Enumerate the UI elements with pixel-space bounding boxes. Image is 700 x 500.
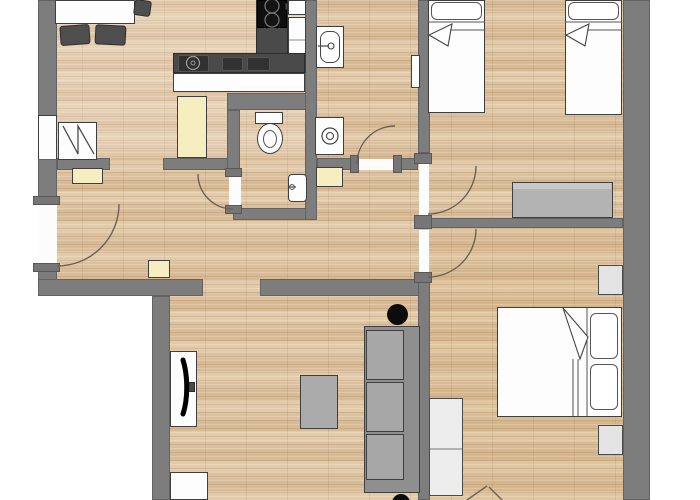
entrance-jamb-bottom: [33, 263, 60, 272]
sideboard-top: [513, 183, 611, 189]
bath-jamb-right: [393, 155, 402, 173]
radiator: [58, 122, 97, 160]
basin-tray: [222, 57, 243, 71]
coffee-table: [300, 375, 338, 429]
toilet-bowl-inner: [263, 130, 277, 148]
low-cabinet: [170, 472, 208, 500]
kitchen-lower-cabinet: [173, 73, 305, 92]
counter-sink: [178, 55, 209, 72]
bedroom-jamb-1: [414, 153, 432, 164]
hand-basin: [288, 174, 307, 202]
bedroom-jamb-3: [414, 272, 432, 283]
entrance-jamb-top: [33, 196, 60, 205]
floor-plan: [0, 0, 700, 500]
bath-door-opening: [359, 159, 393, 170]
sofa-cushion: [366, 382, 404, 432]
dining-table: [55, 0, 135, 24]
towel-radiator: [411, 55, 420, 88]
appliance-handle: [285, 3, 288, 10]
wall-living-top: [260, 279, 430, 296]
sofa-cushion: [366, 330, 404, 380]
pillow: [431, 2, 482, 20]
outside-right: [650, 0, 700, 500]
cooktop: [257, 0, 287, 28]
outside-bottom-left: [0, 296, 152, 500]
chair: [59, 24, 90, 46]
hall-cabinet: [72, 168, 103, 184]
chair: [94, 24, 126, 46]
wall-wc-left: [227, 110, 240, 176]
wall-appliance: [288, 0, 306, 15]
wall-right: [623, 0, 650, 500]
wall-living-left: [152, 296, 170, 500]
hall-cabinet: [148, 260, 170, 278]
wc-jamb-top: [225, 168, 242, 177]
nightstand: [598, 425, 623, 455]
wall-bedrooms-horiz: [430, 218, 623, 228]
pillow: [590, 313, 618, 359]
pillow: [568, 2, 619, 20]
window: [38, 115, 57, 160]
bath-jamb-left: [350, 155, 359, 173]
tv-stand: [188, 382, 195, 392]
sideboard: [512, 182, 613, 218]
double-bedroom-door-opening: [419, 230, 429, 272]
twin-bedroom-door-opening: [419, 164, 429, 215]
wc-jamb-bottom: [225, 205, 242, 214]
wc-door-opening: [229, 177, 241, 205]
washing-machine: [315, 117, 344, 155]
sofa-cushion: [366, 434, 404, 480]
wardrobe: [429, 398, 463, 496]
wall-bottom-left: [38, 279, 203, 296]
washbasin-bowl: [320, 31, 340, 63]
nightstand: [598, 265, 623, 295]
wall-wc-top: [227, 93, 317, 110]
chair: [133, 0, 152, 17]
pantry-cabinet: [177, 96, 207, 158]
plant: [387, 304, 408, 325]
entrance-opening: [38, 205, 57, 263]
basin-tray: [247, 57, 270, 71]
bedroom-jamb-2: [414, 215, 432, 229]
pillow: [590, 364, 618, 410]
hall-shelf: [316, 167, 343, 187]
